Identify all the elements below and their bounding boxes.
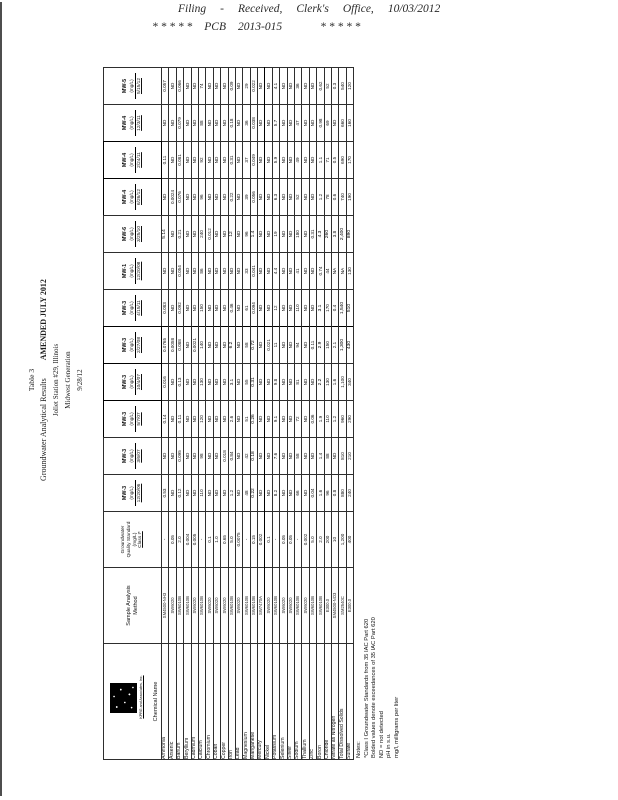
- chemical-name-header: Chemical Name: [153, 644, 159, 759]
- unit-label: (mg/L): [129, 332, 136, 358]
- parameter-row: BoronSW6010B2.01.61.41.92.22.93.10.744.3…: [317, 68, 324, 760]
- quality-standard-value: 0.05: [287, 512, 294, 568]
- result-value: ND: [162, 253, 169, 290]
- sample-column-header: MW-3(mg/L)2/27/08: [104, 327, 162, 364]
- well-id: MW-4: [122, 179, 129, 215]
- parameter-row: MercurySW7470A0.002NDNDNDNDNDNDNDNDNDNDN…: [258, 68, 265, 760]
- method-column-header: Sample AnalysisMethod: [104, 568, 162, 644]
- result-value: ND: [206, 438, 213, 475]
- result-value: 0.06: [309, 401, 316, 438]
- result-value: ND: [265, 105, 272, 142]
- result-value: 0.081: [176, 142, 183, 179]
- quality-standard-value: 0.1: [265, 512, 272, 568]
- parameter-name: Chromium: [206, 644, 213, 760]
- result-value: 3.1: [317, 290, 324, 327]
- result-value: ND: [258, 253, 265, 290]
- parameter-row: CadmiumSW60200.005NDNDNDND0.0021NDNDNDND…: [191, 68, 198, 760]
- result-value: ND: [258, 68, 265, 105]
- result-value: 120: [198, 401, 205, 438]
- sample-date: 12/3/11: [136, 105, 143, 141]
- parameter-row: Total Dissolved SolidsSM2540C1,200880810…: [339, 68, 346, 760]
- result-value: 74: [198, 68, 205, 105]
- well-id: MW-4: [122, 105, 129, 141]
- result-value: 3.8: [331, 216, 338, 253]
- result-value: 0.022: [250, 68, 257, 105]
- result-value: ND: [191, 475, 198, 512]
- result-value: ND: [280, 290, 287, 327]
- result-value: ND: [287, 253, 294, 290]
- result-value: ND: [280, 105, 287, 142]
- result-value: 1.9: [317, 401, 324, 438]
- result-value: ND: [280, 475, 287, 512]
- analysis-method: SW6010B: [228, 568, 235, 644]
- result-value: 0.0021: [191, 327, 198, 364]
- result-value: 4.1: [272, 68, 279, 105]
- result-value: ND: [280, 401, 287, 438]
- result-value: 150: [198, 290, 205, 327]
- parameter-name: Silver: [287, 644, 294, 760]
- amended-label: AMENDED JULY 2012: [39, 279, 48, 360]
- groundwater-results-table: KPRG and Associates, Inc.Chemical NameSa…: [103, 67, 354, 760]
- analysis-method: SW6010B: [250, 568, 257, 644]
- result-value: 0.4: [331, 290, 338, 327]
- result-value: 2.2: [317, 364, 324, 401]
- well-id: MW-4: [122, 142, 129, 178]
- table-number: Table 3: [26, 210, 38, 550]
- result-value: 48: [243, 475, 250, 512]
- result-value: 0.094: [250, 290, 257, 327]
- quality-standard-value: 400: [346, 512, 353, 568]
- analysis-method: SW6020: [191, 568, 198, 644]
- result-value: 540: [339, 68, 346, 105]
- result-value: ND: [235, 401, 242, 438]
- result-value: ND: [287, 105, 294, 142]
- parameter-name: Mercury: [258, 644, 265, 760]
- result-value: ND: [258, 179, 265, 216]
- parameter-row: ChlorideE300.020096881101301501704426078…: [324, 68, 331, 760]
- result-value: 0.088: [176, 327, 183, 364]
- result-value: ND: [287, 327, 294, 364]
- result-value: ND: [191, 438, 198, 475]
- result-value: 0.84: [228, 438, 235, 475]
- result-value: 0.8: [331, 475, 338, 512]
- well-id: MW-1: [122, 253, 129, 289]
- analysis-method: SW6020: [221, 568, 228, 644]
- result-value: ND: [169, 290, 176, 327]
- well-id: MW-5: [122, 68, 129, 104]
- parameter-name: Potassium: [272, 644, 279, 760]
- result-value: ND: [213, 401, 220, 438]
- result-value: 86: [198, 253, 205, 290]
- parameter-name: Iron: [228, 644, 235, 760]
- result-value: 5.9: [272, 142, 279, 179]
- result-value: NA: [339, 253, 346, 290]
- result-value: ND: [169, 438, 176, 475]
- result-value: 6.2: [228, 327, 235, 364]
- well-id: MW-3: [122, 327, 129, 363]
- result-value: 9.1: [272, 401, 279, 438]
- unit-label: (mg/L): [129, 184, 136, 210]
- stamp-word: Received,: [238, 3, 282, 15]
- result-value: 690: [339, 142, 346, 179]
- result-value: ND: [280, 327, 287, 364]
- result-value: ND: [206, 364, 213, 401]
- result-value: ND: [265, 364, 272, 401]
- result-value: ND: [221, 290, 228, 327]
- note-line: *Class I Groundwater Standards from 35 I…: [364, 617, 372, 758]
- note-line: Notes:: [356, 617, 364, 758]
- analysis-method: SW6010B: [317, 568, 324, 644]
- result-value: 72: [295, 401, 302, 438]
- result-value: 120: [346, 68, 353, 105]
- result-value: 1.2: [331, 401, 338, 438]
- result-value: 150: [324, 327, 331, 364]
- result-value: 0.049: [250, 142, 257, 179]
- result-value: ND: [302, 253, 309, 290]
- sample-date: 10/4/07: [136, 364, 143, 400]
- result-value: ND: [258, 327, 265, 364]
- stamp-stars: * * * * *: [152, 21, 192, 33]
- consultant-logo: [110, 683, 137, 713]
- result-value: ND: [280, 364, 287, 401]
- result-value: ND: [184, 179, 191, 216]
- sample-column-header: MW-4(mg/L)12/3/11: [104, 105, 162, 142]
- unit-label: (mg/L): [129, 480, 136, 506]
- analysis-method: SW7470A: [258, 568, 265, 644]
- result-value: 0.092: [176, 290, 183, 327]
- parameter-name: Nitrate as Nitrogen: [331, 644, 338, 760]
- quality-standard-value: -: [243, 512, 250, 568]
- result-value: ND: [213, 327, 220, 364]
- parameter-name: Nickel: [265, 644, 272, 760]
- result-value: 69: [324, 105, 331, 142]
- result-value: 0.095: [176, 438, 183, 475]
- result-value: 44: [324, 253, 331, 290]
- result-value: ND: [258, 290, 265, 327]
- result-value: ND: [184, 105, 191, 142]
- note-line: Bolded values denote exceedances of 35 I…: [371, 617, 379, 758]
- analysis-method: SW6010B: [295, 568, 302, 644]
- result-value: 61: [243, 290, 250, 327]
- quality-standard-value: 1,200: [339, 512, 346, 568]
- analysis-method: SW6010B: [184, 568, 191, 644]
- result-value: 39: [243, 179, 250, 216]
- result-value: 0.74: [317, 253, 324, 290]
- result-value: 210: [346, 438, 353, 475]
- unit-label: (mg/L): [129, 369, 136, 395]
- parameter-name: Calcium: [198, 644, 205, 760]
- sample-date: 2/24/11: [136, 142, 143, 178]
- result-value: ND: [169, 253, 176, 290]
- result-value: ND: [265, 142, 272, 179]
- result-value: 2,400: [339, 216, 346, 253]
- result-value: 0.72: [250, 327, 257, 364]
- parameter-row: ChromiumSW60200.1NDNDNDNDNDNDND0.012NDND…: [206, 68, 213, 760]
- result-value: ND: [235, 68, 242, 105]
- result-value: 130: [198, 364, 205, 401]
- result-value: ND: [235, 179, 242, 216]
- result-value: ND: [206, 68, 213, 105]
- parameter-row: ZincSW6010B5.00.04ND0.06ND0.11NDND0.31ND…: [309, 68, 316, 760]
- result-value: ND: [213, 68, 220, 105]
- result-value: 0.11: [309, 327, 316, 364]
- result-value: ND: [287, 364, 294, 401]
- result-value: 94: [295, 327, 302, 364]
- result-value: ND: [169, 105, 176, 142]
- result-value: 33: [243, 253, 250, 290]
- result-value: ND: [265, 475, 272, 512]
- result-value: ND: [162, 105, 169, 142]
- result-value: NA: [331, 253, 338, 290]
- result-value: ND: [235, 105, 242, 142]
- result-value: 0.083: [162, 290, 169, 327]
- result-value: ND: [302, 364, 309, 401]
- result-value: ND: [265, 216, 272, 253]
- parameter-row: SeleniumSW60200.05NDNDNDNDNDNDNDNDNDNDND…: [280, 68, 287, 760]
- result-value: ND: [184, 216, 191, 253]
- sample-column-header: MW-3(mg/L)3/6/07: [104, 438, 162, 475]
- result-value: 0.31: [228, 142, 235, 179]
- result-value: ND: [280, 142, 287, 179]
- result-value: 88: [324, 438, 331, 475]
- company-name: Midwest Generation: [62, 210, 74, 550]
- result-value: ND: [184, 68, 191, 105]
- sample-column-header: MW-4(mg/L)2/24/11: [104, 142, 162, 179]
- result-value: 4.4: [272, 253, 279, 290]
- result-value: ND: [191, 290, 198, 327]
- result-value: 1,100: [339, 364, 346, 401]
- stamp-stars: * * * * *: [320, 21, 360, 33]
- result-value: 290: [346, 401, 353, 438]
- result-value: 0.054: [176, 253, 183, 290]
- result-value: 1,540: [339, 290, 346, 327]
- result-value: 110: [295, 290, 302, 327]
- result-value: 0.31: [250, 364, 257, 401]
- result-value: 140: [198, 327, 205, 364]
- result-value: 160: [346, 105, 353, 142]
- result-value: ND: [191, 68, 198, 105]
- parameter-name: Sodium: [295, 644, 302, 760]
- well-id: MW-3: [122, 401, 129, 437]
- analysis-method: SW6010B: [176, 568, 183, 644]
- analysis-method: SW6020: [265, 568, 272, 644]
- result-value: ND: [206, 475, 213, 512]
- parameter-row: CobaltSW60201.0NDNDNDNDNDNDNDNDNDNDNDND: [213, 68, 220, 760]
- parameter-row: ManganeseSW6010B0.150.220.180.260.310.72…: [250, 68, 257, 760]
- unit-label: (mg/L): [129, 147, 136, 173]
- result-value: ND: [206, 401, 213, 438]
- result-value: 660: [339, 105, 346, 142]
- analysis-method: SM4500-NH3: [162, 568, 169, 644]
- result-value: 51: [243, 401, 250, 438]
- result-value: 1.2: [228, 475, 235, 512]
- filing-stamp-line2: * * * * *PCB2013-015* * * * *: [152, 21, 360, 33]
- result-value: 5.14: [162, 216, 169, 253]
- result-value: ND: [228, 253, 235, 290]
- result-value: ND: [287, 475, 294, 512]
- parameter-name: Zinc: [309, 644, 316, 760]
- result-value: 9.8: [272, 364, 279, 401]
- result-value: 37: [243, 142, 250, 179]
- result-value: 0.14: [162, 401, 169, 438]
- analysis-method: SW6010B: [309, 568, 316, 644]
- result-value: 0.04: [309, 475, 316, 512]
- table-header-row: KPRG and Associates, Inc.Chemical NameSa…: [104, 68, 162, 760]
- result-value: 12: [228, 216, 235, 253]
- quality-standard-value: 200: [324, 512, 331, 568]
- result-value: ND: [162, 438, 169, 475]
- quality-standard-value: 0.05: [169, 512, 176, 568]
- parameter-row: PotassiumSW6010B-8.27.69.19.811124.4196.…: [272, 68, 279, 760]
- result-value: 58: [295, 438, 302, 475]
- result-value: 41: [295, 253, 302, 290]
- sample-column-header: MW-4(mg/L)6/26/12: [104, 179, 162, 216]
- result-value: 1.6: [317, 475, 324, 512]
- result-value: ND: [191, 216, 198, 253]
- result-value: 0.26: [250, 401, 257, 438]
- result-value: ND: [184, 253, 191, 290]
- result-value: 36: [243, 105, 250, 142]
- result-value: 0.22: [250, 475, 257, 512]
- result-value: 3.1: [228, 364, 235, 401]
- result-value: ND: [221, 401, 228, 438]
- analysis-method: E300.0: [346, 568, 353, 644]
- result-value: 0.11: [176, 401, 183, 438]
- result-value: ND: [235, 253, 242, 290]
- analysis-method: SW6020: [169, 568, 176, 644]
- quality-standard-value: -: [198, 512, 205, 568]
- result-value: ND: [309, 253, 316, 290]
- result-value: ND: [184, 364, 191, 401]
- result-value: 0.21: [176, 216, 183, 253]
- result-value: ND: [302, 401, 309, 438]
- result-value: 36: [295, 68, 302, 105]
- result-value: 0.22: [228, 179, 235, 216]
- sample-date: 5/7/07: [136, 401, 143, 437]
- unit-label: (mg/L): [129, 73, 136, 99]
- result-value: 180: [295, 216, 302, 253]
- result-value: ND: [221, 253, 228, 290]
- result-value: ND: [162, 179, 169, 216]
- sample-column-header: MW-3(mg/L)10/4/07: [104, 364, 162, 401]
- result-value: 1.4: [250, 216, 257, 253]
- result-value: ND: [280, 253, 287, 290]
- result-value: ND: [221, 364, 228, 401]
- scanned-document-page: Filing-Received,Clerk'sOffice,10/03/2012…: [0, 0, 618, 800]
- result-value: 0.066: [176, 68, 183, 105]
- quality-standard-value: 5.0: [228, 512, 235, 568]
- parameter-name: Arsenic: [169, 644, 176, 760]
- note-line: pH in s.u.: [386, 617, 394, 758]
- result-value: ND: [265, 438, 272, 475]
- result-value: ND: [213, 105, 220, 142]
- stamp-word: Filing: [178, 3, 206, 15]
- sample-column-header: MW-3(mg/L)4/15/11: [104, 290, 162, 327]
- sample-column-header: MW-3(mg/L)5/7/07: [104, 401, 162, 438]
- result-value: ND: [213, 290, 220, 327]
- table-main-title: Groundwater Analytical ResultsAMENDED JU…: [38, 210, 50, 550]
- parameter-row: SodiumSW6010B-66587281941104118052494736: [295, 68, 302, 760]
- result-value: 0.18: [250, 438, 257, 475]
- analysis-method: SM4500-NO3: [331, 568, 338, 644]
- result-value: 190: [346, 179, 353, 216]
- unit-label: (mg/L): [129, 443, 136, 469]
- result-value: ND: [169, 364, 176, 401]
- result-value: ND: [302, 438, 309, 475]
- result-value: 6.3: [272, 179, 279, 216]
- result-value: ND: [280, 216, 287, 253]
- consultant-name: KPRG and Associates, Inc.: [139, 673, 143, 721]
- result-value: ND: [309, 142, 316, 179]
- result-value: 170: [346, 142, 353, 179]
- result-value: 47: [295, 105, 302, 142]
- parameter-name: Selenium: [280, 644, 287, 760]
- table-title-block: Table 3 Groundwater Analytical ResultsAM…: [26, 210, 86, 550]
- result-value: 2.6: [228, 401, 235, 438]
- result-value: ND: [258, 475, 265, 512]
- quality-standard-value: 0.65: [221, 512, 228, 568]
- result-value: 96: [243, 216, 250, 253]
- parameter-name: Cadmium: [191, 644, 198, 760]
- unit-label: (mg/L): [129, 110, 136, 136]
- result-value: ND: [213, 475, 220, 512]
- result-value: 430: [346, 327, 353, 364]
- result-value: 0.021: [265, 327, 272, 364]
- sample-date: 3/25/10: [136, 216, 143, 252]
- result-value: ND: [191, 142, 198, 179]
- result-value: ND: [184, 438, 191, 475]
- note-line: ND = not detected: [379, 617, 387, 758]
- result-value: ND: [206, 327, 213, 364]
- unit-label: (mg/L): [129, 406, 136, 432]
- result-value: 19: [272, 216, 279, 253]
- result-value: ND: [309, 290, 316, 327]
- quality-standard-value: 0.0075: [235, 512, 242, 568]
- result-value: ND: [287, 438, 294, 475]
- result-value: 880: [339, 475, 346, 512]
- result-value: 52: [324, 68, 331, 105]
- parameter-row: Nitrate as NitrogenSM4500-NO3100.8ND1.21…: [331, 68, 338, 760]
- parameter-name: Manganese: [250, 644, 257, 760]
- stamp-pcb: PCB: [204, 21, 226, 33]
- result-value: 0.079: [176, 105, 183, 142]
- result-value: 0.09: [228, 68, 235, 105]
- result-value: 0.012: [206, 216, 213, 253]
- quality-standard-value: 1.0: [213, 512, 220, 568]
- result-value: 1.1: [317, 142, 324, 179]
- result-value: 740: [339, 179, 346, 216]
- result-value: ND: [309, 179, 316, 216]
- result-value: 0.62: [317, 68, 324, 105]
- result-value: ND: [213, 142, 220, 179]
- result-value: 0.31: [309, 216, 316, 253]
- result-value: ND: [309, 364, 316, 401]
- result-value: ND: [235, 475, 242, 512]
- result-value: 170: [324, 290, 331, 327]
- unit-label: (mg/L): [129, 258, 136, 284]
- parameter-row: MagnesiumSW6010B-48425155586133963937362…: [243, 68, 250, 760]
- result-value: 260: [324, 216, 331, 253]
- result-value: ND: [265, 401, 272, 438]
- result-value: 0.018: [221, 438, 228, 475]
- result-value: ND: [302, 327, 309, 364]
- result-value: 890: [346, 216, 353, 253]
- result-value: ND: [302, 105, 309, 142]
- quality-standard-value: 2.0: [317, 512, 324, 568]
- result-value: ND: [280, 179, 287, 216]
- result-value: ND: [191, 105, 198, 142]
- result-value: ND: [235, 438, 242, 475]
